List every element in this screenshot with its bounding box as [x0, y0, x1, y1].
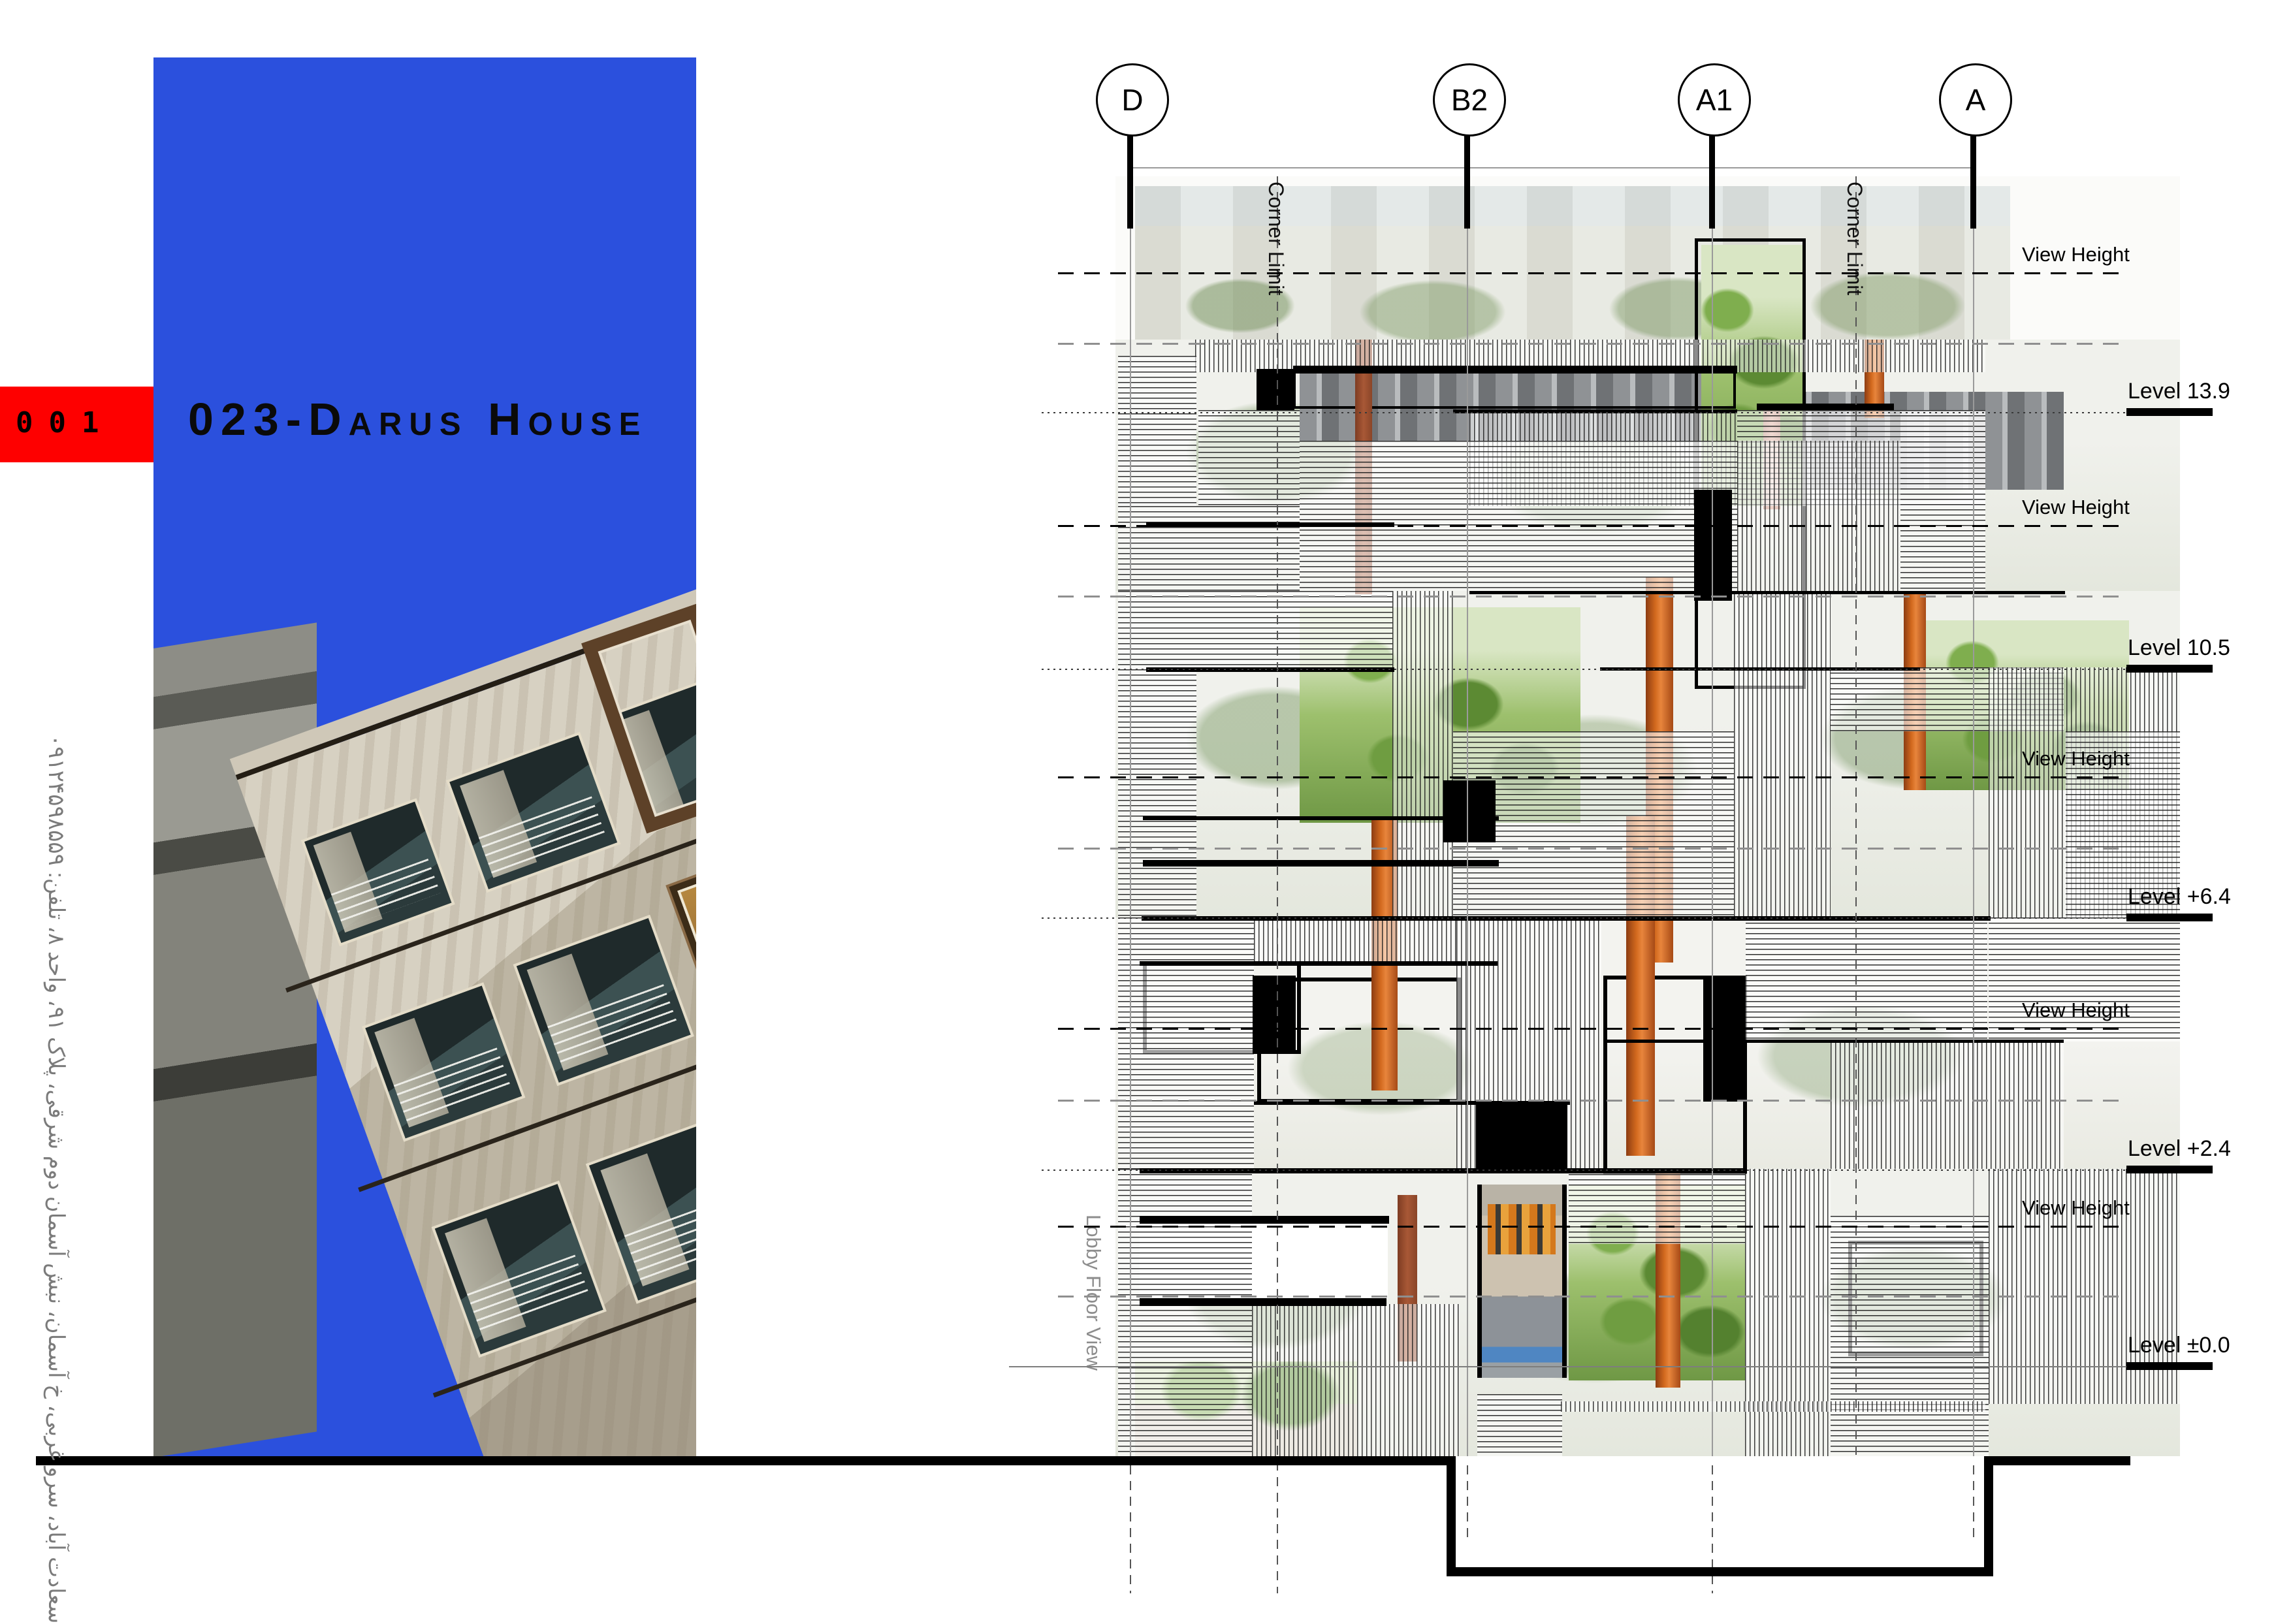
slab-line [1140, 1216, 1389, 1224]
presentation-sheet: { "sheet": {"background": "#ffffff"}, "i… [0, 0, 2291, 1619]
hatch [1300, 441, 1737, 591]
view-height-line [1058, 1226, 2129, 1228]
pit-floor [1447, 1567, 1993, 1576]
grid-bubble-A1: A1 [1678, 63, 1751, 136]
gate-photo [1488, 1204, 1555, 1254]
parapet-line [1058, 848, 2129, 850]
level-leader [1042, 669, 2126, 670]
hatch [1734, 591, 1831, 917]
drawing-top-edge [1130, 167, 1974, 168]
parapet-line [1058, 343, 2129, 345]
hatch [1198, 410, 1300, 506]
view-height-label: View Height [2022, 747, 2130, 771]
lobby-floor-view-label: Lobby Floor View [1081, 1215, 1105, 1371]
hatch [1392, 591, 1453, 917]
hatch [1831, 1216, 1989, 1456]
parapet-line [1058, 1296, 2129, 1298]
parapet-line [1058, 596, 2129, 597]
ground-line-left [36, 1456, 1447, 1465]
black-box [1253, 976, 1296, 1054]
grid-bubble-D: D [1096, 63, 1169, 136]
hatch [1831, 1040, 2064, 1169]
slab-line [1469, 591, 2065, 594]
black-box [1443, 780, 1496, 842]
view-height-label: View Height [2022, 998, 2130, 1022]
window [362, 982, 525, 1141]
hatch [1746, 917, 1987, 1040]
level-bar [2126, 914, 2213, 921]
level-leader [1042, 412, 2126, 413]
window [586, 1112, 696, 1304]
hero-photo [153, 57, 696, 1457]
view-height-line [1058, 272, 2129, 274]
level-bar [2126, 1166, 2213, 1173]
window [432, 1181, 607, 1358]
ground-line-right [1984, 1456, 2130, 1465]
level-leader [1042, 1170, 2126, 1171]
slab-line [1143, 860, 1499, 867]
hatch [1118, 506, 1300, 591]
slab-line [1140, 1298, 1386, 1306]
corner-limit-label-2: Corner Limit [1842, 182, 1866, 295]
driveway-photo [1477, 1185, 1566, 1378]
level-label: Level +2.4 [2128, 1136, 2231, 1162]
black-box [1694, 490, 1732, 601]
driveway-edge [1477, 1185, 1482, 1378]
hatch [1118, 917, 1254, 1169]
slab-line [1757, 404, 1894, 410]
grid-bubble-label: A1 [1696, 82, 1733, 118]
slab-line [1293, 366, 1737, 374]
level-leader-ground [1009, 1366, 2126, 1367]
window [513, 915, 694, 1086]
window [446, 732, 620, 893]
black-box [1257, 369, 1294, 410]
slab-line [1603, 1040, 2064, 1043]
grid-bubble-label: A [1966, 82, 1986, 118]
view-height-line [1058, 1028, 2129, 1030]
hatch [1745, 1169, 1831, 1456]
slab-line [1140, 961, 1498, 966]
page-title: 023-Darus House [188, 393, 647, 445]
grid-bubble-B2: B2 [1433, 63, 1506, 136]
grid-stem-B2 [1464, 133, 1470, 229]
view-height-line [1058, 525, 2129, 527]
level-label: Level 10.5 [2128, 635, 2230, 661]
pit-wall-right [1984, 1456, 1993, 1576]
neighbor-building [153, 622, 317, 1457]
grid-line-D-below [1130, 1465, 1131, 1593]
grid-stem-A [1970, 133, 1976, 229]
view-height-label: View Height [2022, 243, 2130, 266]
ornament-panel [677, 858, 696, 1080]
hatch [1254, 917, 1456, 961]
level-bar [2126, 408, 2213, 416]
level-label: Level 13.9 [2128, 379, 2230, 404]
driveway-edge [1562, 1185, 1567, 1378]
parapet-line [1058, 1100, 2129, 1102]
corner-limit-line-2 [1855, 176, 1857, 1456]
stair-hatch [1477, 1394, 1562, 1456]
grid-bubble-label: D [1121, 82, 1143, 118]
level-label: Level +6.4 [2128, 884, 2231, 910]
base-tick-hatch [1561, 1401, 1985, 1412]
pit-wall-left [1447, 1456, 1456, 1576]
hatch [1196, 591, 1392, 667]
grid-stem-A1 [1709, 133, 1715, 229]
view-height-line [1058, 776, 2129, 778]
address-sidebar: سعادت آباد، سرو غربی، خ آسمان، نبش آسمان… [43, 735, 69, 1624]
hatch [1569, 1169, 1745, 1244]
grid-bubble-label: B2 [1451, 82, 1488, 118]
window [301, 798, 455, 946]
view-height-label: View Height [2022, 496, 2130, 519]
hatch [1118, 1169, 1252, 1456]
level-bar [2126, 665, 2213, 673]
grid-stem-D [1127, 133, 1133, 229]
grid-line-B2-below [1467, 1465, 1468, 1544]
grid-line-A-below [1973, 1465, 1974, 1544]
corner-limit-label-1: Corner Limit [1264, 182, 1288, 295]
grid-bubble-A: A [1939, 63, 2012, 136]
level-bar [2126, 1362, 2213, 1370]
hatch [1989, 917, 2180, 1042]
slab-line [1143, 816, 1499, 820]
view-height-label: View Height [2022, 1196, 2130, 1220]
index-number: 001 [16, 406, 114, 439]
level-leader [1042, 917, 2126, 919]
corner-limit-line-1 [1277, 176, 1278, 1593]
hatch [1252, 1304, 1460, 1456]
level-label: Level ±0.0 [2128, 1333, 2230, 1358]
index-badge: 001 [0, 387, 153, 462]
hatch [1737, 441, 1900, 591]
black-box [1476, 1101, 1567, 1170]
elevation-drawing [1115, 176, 2180, 1456]
